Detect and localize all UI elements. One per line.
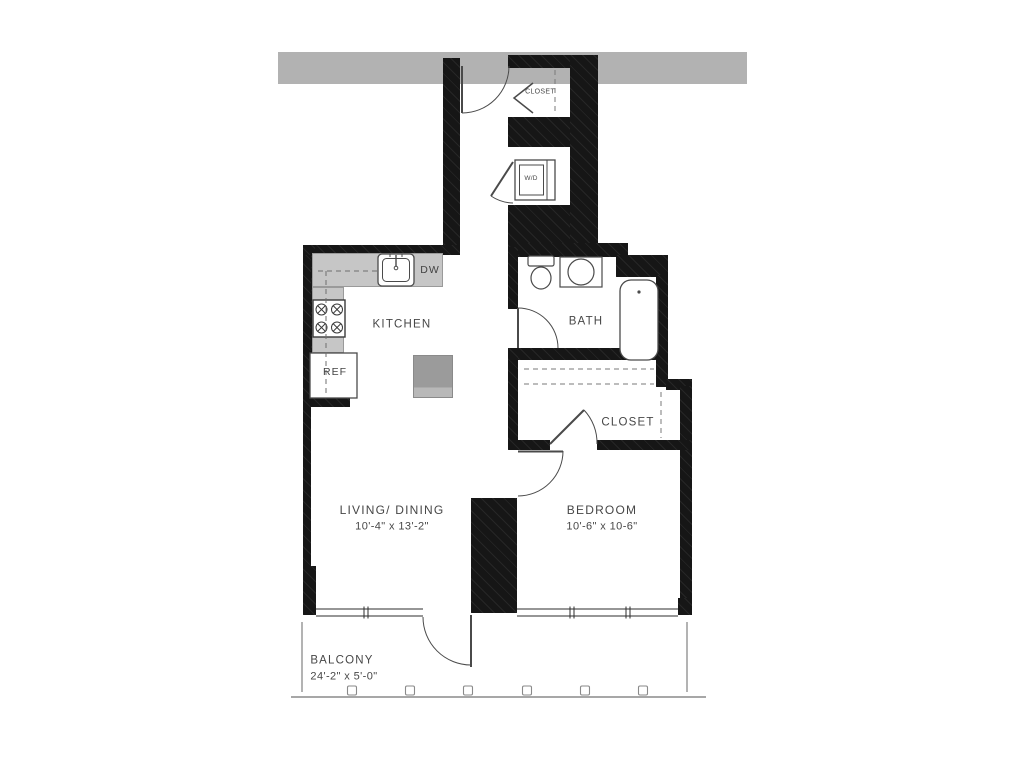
bath-label: BATH (569, 316, 604, 328)
living-dining-label: LIVING/ DINING (340, 504, 445, 516)
entry-closet-door (514, 83, 533, 113)
kitchen-label: KITCHEN (373, 319, 432, 331)
toilet (528, 256, 554, 289)
bedroom-label: BEDROOM (567, 504, 637, 516)
bedroom-closet-label: CLOSET (601, 417, 654, 429)
bath-door (518, 308, 558, 348)
stove (313, 300, 345, 337)
bedroom-closet-door (550, 410, 597, 444)
plan-linework (0, 0, 1024, 768)
kitchen-sink (378, 254, 414, 286)
window-left (316, 607, 423, 619)
washer-dryer-label: W/D (524, 176, 537, 183)
bathtub (620, 280, 658, 360)
entry-door (462, 66, 509, 113)
refrigerator-label: REF (323, 367, 347, 378)
dishwasher-label: DW (420, 265, 440, 276)
washer-dryer-door (491, 162, 513, 203)
window-right (517, 607, 678, 619)
bath-sink-vanity (560, 257, 602, 287)
balcony-label: BALCONY (310, 655, 373, 667)
entry-closet-label: CLOSET (525, 89, 555, 96)
balcony-door (423, 615, 471, 667)
living-dining-dims: 10'-4" x 13'-2" (355, 522, 429, 533)
bedroom-dims: 10'-6" x 10-6" (566, 522, 637, 533)
floor-plan: CLOSET W/D DW KITCHEN REF BATH CLOSET LI… (0, 0, 1024, 768)
balcony-posts (348, 686, 648, 695)
bedroom-door (518, 451, 563, 496)
balcony-dims: 24'-2" x 5'-0" (310, 672, 377, 683)
